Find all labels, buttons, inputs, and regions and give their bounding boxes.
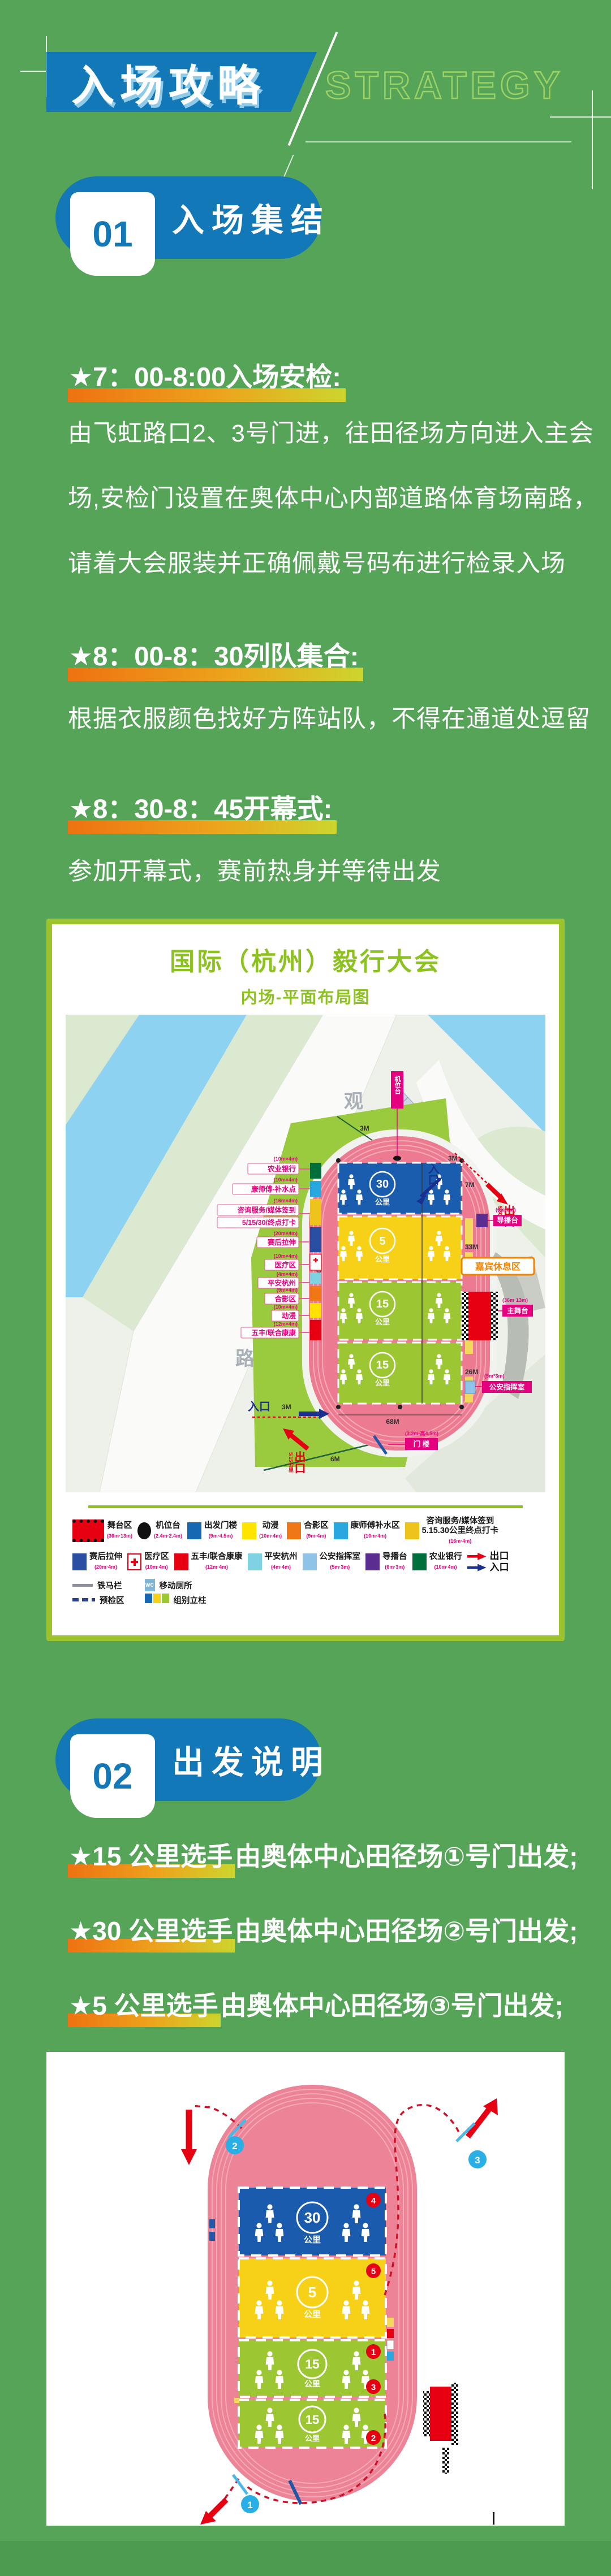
svg-text:(9m×4m): (9m×4m) xyxy=(277,1287,298,1293)
svg-text:3: 3 xyxy=(371,2383,376,2392)
svg-text:5/15/30/终点打卡: 5/15/30/终点打卡 xyxy=(242,1218,296,1227)
svg-text:咨询服务/媒体签到: 咨询服务/媒体签到 xyxy=(238,1206,296,1214)
svg-text:赛后拉伸: 赛后拉伸 xyxy=(267,1238,296,1246)
svg-text:公里: 公里 xyxy=(304,2310,321,2319)
svg-text:合影区: 合影区 xyxy=(274,1295,296,1303)
road-label: 路 xyxy=(235,1348,255,1370)
departure-line-15km: ★15 公里选手由奥体中心田径场①号门出发; xyxy=(68,1836,578,1873)
svg-text:五丰/联合康康: 五丰/联合康康 xyxy=(252,1328,296,1337)
map-subtitle: 内场-平面布局图 xyxy=(52,984,559,1008)
legend-item: 赛后拉伸(20m·4m) xyxy=(72,1552,122,1571)
svg-text:(6m*3m): (6m*3m) xyxy=(496,1207,516,1213)
legend-item: 铁马栏 xyxy=(72,1579,122,1591)
departure-line-5km: ★5 公里选手由奥体中心田径场③号门出发; xyxy=(68,1985,563,2023)
svg-text:3M: 3M xyxy=(448,1154,458,1162)
paragraph-line: 由飞虹路口2、3号门进，往田径场方向进入主会 xyxy=(68,414,594,449)
heading-lineup: ★8：00-8：30列队集合: xyxy=(68,634,363,681)
svg-text:5: 5 xyxy=(371,2267,376,2276)
legend-item: 咨询服务/媒体签到5.15.30公里终点打卡(16m·4m) xyxy=(405,1517,498,1545)
svg-text:15: 15 xyxy=(376,1298,389,1310)
map-title: 国际（杭州）毅行大会 xyxy=(52,941,559,977)
sponsor-icon xyxy=(174,1553,188,1570)
water-station-icon xyxy=(334,1522,348,1539)
legend-item: 机位台(2.4m·2.4m) xyxy=(137,1521,182,1540)
svg-text:4: 4 xyxy=(371,2196,376,2206)
svg-text:公里: 公里 xyxy=(375,1379,390,1387)
legend-item: 出发门楼(9m·4.5m) xyxy=(187,1521,237,1540)
svg-text:主舞台: 主舞台 xyxy=(507,1306,528,1315)
svg-text:公里: 公里 xyxy=(375,1198,390,1206)
paragraph-line: 参加开幕式，赛前热身并等待出发 xyxy=(68,852,441,887)
stretch-area-icon xyxy=(72,1553,87,1570)
svg-text:平安杭州: 平安杭州 xyxy=(268,1279,296,1287)
svg-text:导播台: 导播台 xyxy=(497,1216,518,1224)
bank-icon xyxy=(412,1553,427,1570)
legend-row-2: 赛后拉伸(20m·4m) 医疗区(10m·4m) 五丰/联合康康(12m·4m)… xyxy=(72,1550,542,1574)
svg-text:(10m×4m): (10m×4m) xyxy=(274,1177,298,1183)
page-subtitle: STRATEGY xyxy=(325,63,563,107)
svg-text:嘉宾休息区: 嘉宾休息区 xyxy=(475,1261,520,1272)
section-number: 02 xyxy=(70,1734,155,1818)
map-legend: 舞台区(36m·13m) 机位台(2.4m·2.4m) 出发门楼(9m·4.5m… xyxy=(72,1517,542,1611)
exit-arrow-icon xyxy=(467,1553,487,1560)
legend-item: 舞台区(36m·13m) xyxy=(72,1519,132,1542)
svg-text:3M: 3M xyxy=(282,1403,291,1411)
svg-text:(10m×4m): (10m×4m) xyxy=(274,1304,298,1310)
entry-arrow-icon xyxy=(467,1564,487,1571)
group-pillar-icon xyxy=(145,1594,170,1606)
svg-text:2: 2 xyxy=(232,2141,237,2151)
paragraph-line: 根据衣服颜色找好方阵站队，不得在通道处逗留 xyxy=(68,699,591,734)
legend-row-1: 舞台区(36m·13m) 机位台(2.4m·2.4m) 出发门楼(9m·4.5m… xyxy=(72,1517,542,1545)
measurement: 26M xyxy=(465,1368,478,1376)
svg-text:动漫: 动漫 xyxy=(282,1311,296,1320)
svg-text:(10m×4m): (10m×4m) xyxy=(274,1253,298,1259)
photo-area-icon xyxy=(287,1522,301,1539)
pingan-icon xyxy=(248,1553,262,1570)
svg-text:机位台: 机位台 xyxy=(394,1075,401,1095)
venue-map: 观 澜 路 xyxy=(66,1015,545,1492)
svg-text:(10m×4m): (10m×4m) xyxy=(274,1156,298,1162)
header-banner: 入场攻略 xyxy=(46,52,317,112)
section-1-badge: 01 入场集结 xyxy=(55,176,350,276)
svg-text:(16m×4m): (16m×4m) xyxy=(274,1198,298,1203)
heading-security-check: ★7：00-8:00入场安检: xyxy=(68,355,346,402)
svg-text:3: 3 xyxy=(475,2155,480,2166)
svg-text:(20m×4m): (20m×4m) xyxy=(274,1231,298,1236)
header-underline xyxy=(305,141,571,142)
svg-text:公里: 公里 xyxy=(305,2434,320,2443)
svg-text:1: 1 xyxy=(371,2348,376,2357)
precheck-icon xyxy=(72,1598,95,1601)
svg-text:农业银行: 农业银行 xyxy=(267,1164,296,1173)
svg-text:门 楼: 门 楼 xyxy=(414,1440,430,1448)
svg-text:公安指挥室: 公安指挥室 xyxy=(489,1383,525,1391)
svg-text:15: 15 xyxy=(376,1359,389,1371)
service-strips xyxy=(310,1163,321,1340)
legend-item: 五丰/联合康康(12m·4m) xyxy=(174,1552,243,1571)
legend-item: 医疗区(10m·4m) xyxy=(127,1552,169,1571)
svg-text:公里: 公里 xyxy=(375,1318,390,1326)
crosshair-line xyxy=(592,90,593,189)
svg-text:(12m×4m): (12m×4m) xyxy=(274,1321,298,1327)
paragraph-line: 场,安检门设置在奥体中心内部道路体育场南路， xyxy=(68,479,598,514)
measurement: 3M xyxy=(360,1124,369,1132)
svg-text:(3.2m-高4.5m): (3.2m-高4.5m) xyxy=(405,1430,438,1436)
legend-item: 合影区(9m·4m) xyxy=(287,1521,329,1540)
legend-item-arrows: 出口 入口 xyxy=(467,1550,509,1574)
venue-map-card: 国际（杭州）毅行大会 内场-平面布局图 xyxy=(46,919,565,1641)
svg-text:出口: 出口 xyxy=(292,1451,305,1474)
anime-icon xyxy=(242,1522,256,1539)
heading-opening-ceremony: ★8：30-8：45开幕式: xyxy=(68,787,337,834)
svg-text:(5m*3m): (5m*3m) xyxy=(484,1373,505,1379)
svg-text:30: 30 xyxy=(304,2209,321,2226)
legend-item: 平安杭州(4m·4m) xyxy=(248,1552,298,1571)
departure-line-30km: ★30 公里选手由奥体中心田径场②号门出发; xyxy=(68,1911,578,1948)
svg-text:5/15公里: 5/15公里 xyxy=(288,1452,294,1473)
legend-row-3: 铁马栏 WC移动厕所 xyxy=(72,1579,542,1591)
page-title: 入场攻略 xyxy=(71,51,266,113)
legend-item: 公安指挥室(5m·3m) xyxy=(303,1552,361,1571)
svg-text:医疗区: 医疗区 xyxy=(274,1261,296,1269)
svg-text:康师傅-补水点: 康师傅-补水点 xyxy=(251,1185,296,1193)
section-title: 入场集结 xyxy=(172,176,330,259)
measurement: 7M xyxy=(465,1181,475,1189)
camera-spot-icon xyxy=(137,1522,151,1539)
section-title: 出发说明 xyxy=(172,1718,330,1801)
barrier-icon xyxy=(72,1584,93,1587)
section-2-badge: 02 出发说明 xyxy=(55,1718,350,1818)
measurement: 33M xyxy=(465,1243,478,1251)
road-label: 观 xyxy=(344,1091,363,1112)
svg-text:公里: 公里 xyxy=(375,1255,390,1263)
svg-text:2: 2 xyxy=(371,2434,376,2443)
broadcast-icon xyxy=(365,1553,380,1570)
legend-item: 农业银行(10m·4m) xyxy=(412,1552,462,1571)
bottom-band xyxy=(0,2541,611,2576)
svg-text:1: 1 xyxy=(247,2500,252,2510)
poster-page: 入场攻略 STRATEGY 01 入场集结 ★7：00-8:00入场安检: 由飞… xyxy=(0,0,611,2576)
toilet-icon: WC xyxy=(145,1579,155,1591)
legend-item: 导播台(6m·3m) xyxy=(365,1552,407,1571)
legend-item: 动漫(10m·4m) xyxy=(242,1521,282,1540)
medical-icon xyxy=(127,1553,141,1570)
svg-text:30: 30 xyxy=(376,1178,389,1190)
svg-text:(4m×4m): (4m×4m) xyxy=(277,1271,298,1277)
departure-diagram-card: 30 公里 5 公里 15 公里 15 公里 xyxy=(46,2052,565,2526)
svg-text:公里: 公里 xyxy=(304,2235,321,2245)
svg-text:6M: 6M xyxy=(330,1455,340,1463)
svg-text:5: 5 xyxy=(379,1235,385,1248)
legend-item: WC移动厕所 xyxy=(145,1579,192,1591)
legend-row-4: 预检区 组别立柱 xyxy=(72,1594,542,1606)
paragraph-line: 请着大会服装并正确佩戴号码布进行检录入场 xyxy=(68,544,566,579)
police-room-icon xyxy=(303,1553,317,1570)
legend-divider xyxy=(88,1505,523,1508)
svg-text:入口: 入口 xyxy=(248,1400,270,1413)
svg-text:(36m·13m): (36m·13m) xyxy=(502,1297,528,1303)
svg-text:15: 15 xyxy=(305,2413,319,2427)
legend-item: 组别立柱 xyxy=(145,1594,206,1606)
info-service-icon xyxy=(405,1522,419,1539)
crosshair-line xyxy=(550,116,611,118)
section-number: 01 xyxy=(70,192,155,276)
departure-diagram: 30 公里 5 公里 15 公里 15 公里 xyxy=(46,2052,565,2526)
legend-item: 康师傅补水区(10m·4m) xyxy=(334,1521,400,1540)
svg-text:公里: 公里 xyxy=(304,2379,320,2388)
svg-text:15: 15 xyxy=(305,2357,320,2371)
start-gate-icon xyxy=(187,1522,201,1539)
measurement: 68M xyxy=(386,1418,399,1426)
svg-text:5: 5 xyxy=(308,2284,316,2301)
stage-icon xyxy=(72,1519,104,1542)
tick-mark xyxy=(493,2512,494,2525)
legend-item: 预检区 xyxy=(72,1594,124,1606)
